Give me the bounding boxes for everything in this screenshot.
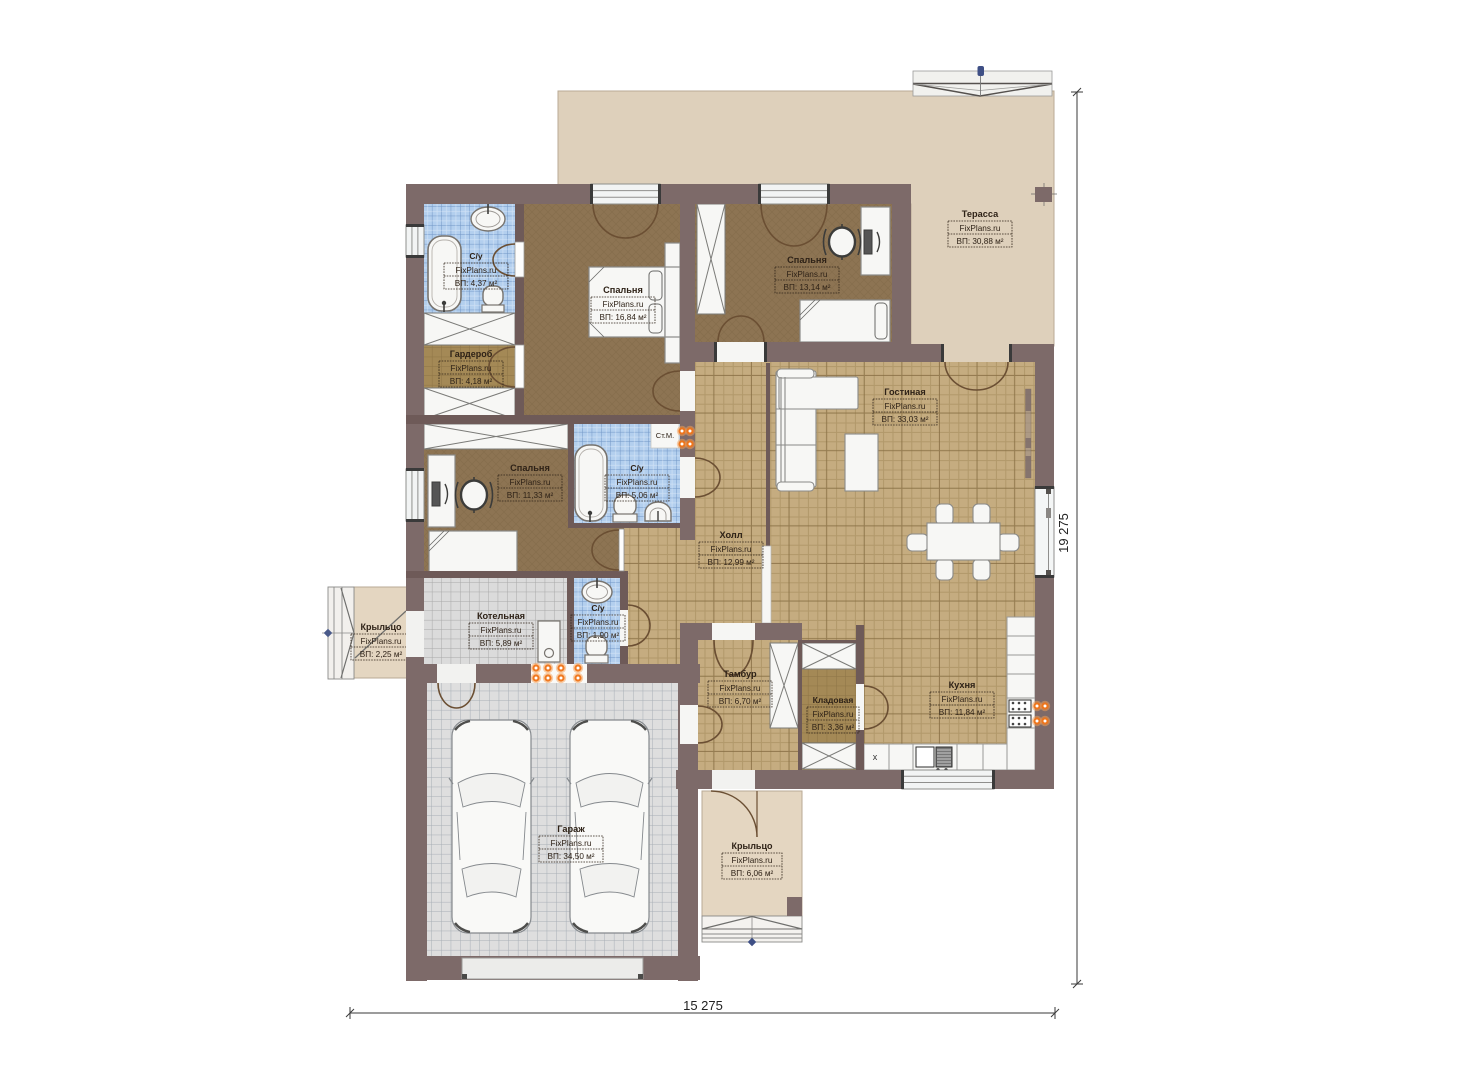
svg-text:ВП: 11,84 м²: ВП: 11,84 м²: [939, 708, 986, 717]
svg-text:FixPlans.ru: FixPlans.ru: [551, 839, 592, 848]
svg-text:Спальня: Спальня: [510, 463, 550, 473]
svg-text:С/у: С/у: [630, 463, 644, 473]
svg-text:ВП: 16,84 м²: ВП: 16,84 м²: [599, 313, 646, 322]
svg-text:FixPlans.ru: FixPlans.ru: [603, 300, 644, 309]
svg-text:FixPlans.ru: FixPlans.ru: [451, 364, 492, 373]
svg-text:Тамбур: Тамбур: [723, 669, 757, 679]
svg-text:ВП: 5,06 м²: ВП: 5,06 м²: [616, 491, 659, 500]
svg-text:ВП: 4,18 м²: ВП: 4,18 м²: [450, 377, 493, 386]
svg-text:FixPlans.ru: FixPlans.ru: [960, 224, 1001, 233]
svg-text:Холл: Холл: [719, 530, 742, 540]
svg-text:FixPlans.ru: FixPlans.ru: [732, 856, 773, 865]
svg-text:ВП: 30,88 м²: ВП: 30,88 м²: [956, 237, 1003, 246]
svg-text:ВП: 2,25 м²: ВП: 2,25 м²: [360, 650, 403, 659]
svg-text:ВП: 3,36 м²: ВП: 3,36 м²: [812, 723, 855, 732]
svg-text:FixPlans.ru: FixPlans.ru: [456, 266, 497, 275]
svg-text:ВП: 5,89 м²: ВП: 5,89 м²: [480, 639, 523, 648]
svg-text:Гардероб: Гардероб: [450, 349, 493, 359]
svg-text:ВП: 34,50 м²: ВП: 34,50 м²: [547, 852, 594, 861]
svg-text:ВП: 6,70 м²: ВП: 6,70 м²: [719, 697, 762, 706]
svg-text:ВП: 1,90 м²: ВП: 1,90 м²: [577, 631, 620, 640]
svg-text:Спальня: Спальня: [787, 255, 827, 265]
svg-text:FixPlans.ru: FixPlans.ru: [481, 626, 522, 635]
svg-text:Кладовая: Кладовая: [813, 695, 854, 705]
svg-text:ВП: 11,33 м²: ВП: 11,33 м²: [507, 491, 554, 500]
svg-text:Котельная: Котельная: [477, 611, 525, 621]
svg-text:С/у: С/у: [591, 603, 605, 613]
svg-text:FixPlans.ru: FixPlans.ru: [711, 545, 752, 554]
svg-text:FixPlans.ru: FixPlans.ru: [885, 402, 926, 411]
svg-text:ВП: 6,06 м²: ВП: 6,06 м²: [731, 869, 774, 878]
svg-text:FixPlans.ru: FixPlans.ru: [787, 270, 828, 279]
svg-text:ВП: 12,99 м²: ВП: 12,99 м²: [707, 558, 754, 567]
svg-text:Ст.М.: Ст.М.: [656, 431, 674, 440]
svg-text:FixPlans.ru: FixPlans.ru: [578, 618, 619, 627]
svg-text:Гараж: Гараж: [557, 824, 585, 834]
svg-text:Спальня: Спальня: [603, 285, 643, 295]
svg-text:FixPlans.ru: FixPlans.ru: [617, 478, 658, 487]
svg-text:19 275: 19 275: [1056, 513, 1071, 553]
svg-text:Крыльцо: Крыльцо: [732, 841, 773, 851]
svg-text:FixPlans.ru: FixPlans.ru: [361, 637, 402, 646]
svg-text:FixPlans.ru: FixPlans.ru: [510, 478, 551, 487]
svg-text:FixPlans.ru: FixPlans.ru: [813, 710, 854, 719]
svg-text:FixPlans.ru: FixPlans.ru: [720, 684, 761, 693]
svg-text:x: x: [873, 752, 878, 762]
svg-text:Крыльцо: Крыльцо: [361, 622, 402, 632]
svg-text:ВП: 33,03 м²: ВП: 33,03 м²: [881, 415, 928, 424]
svg-text:15 275: 15 275: [683, 998, 723, 1013]
svg-text:Кухня: Кухня: [949, 680, 976, 690]
svg-text:С/у: С/у: [469, 251, 483, 261]
svg-text:Гостиная: Гостиная: [884, 387, 926, 397]
svg-text:ВП: 13,14 м²: ВП: 13,14 м²: [783, 283, 830, 292]
svg-text:Терасса: Терасса: [962, 209, 999, 219]
svg-text:FixPlans.ru: FixPlans.ru: [942, 695, 983, 704]
svg-text:ВП: 4,37 м²: ВП: 4,37 м²: [455, 279, 498, 288]
